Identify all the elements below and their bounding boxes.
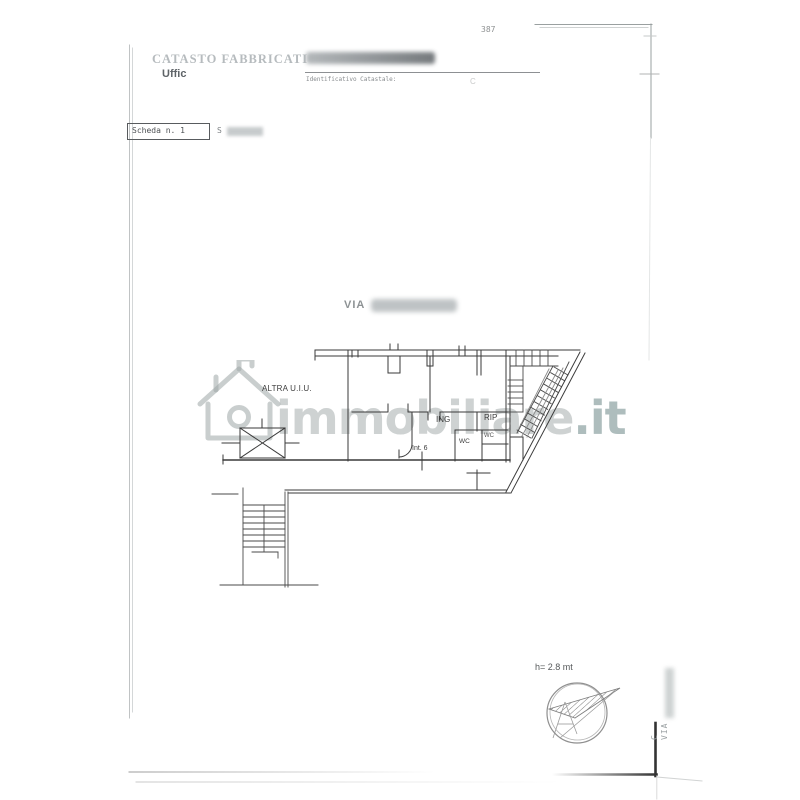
floorplan-drawing bbox=[0, 0, 800, 800]
label-internal-number: Int. 6 bbox=[412, 445, 428, 452]
redacted-street-name bbox=[371, 299, 457, 312]
label-entrance: ING bbox=[436, 415, 450, 424]
identifier-faint-char: C bbox=[470, 77, 476, 86]
scheda-label: Scheda n. 1 bbox=[132, 126, 185, 135]
page-number: 387 bbox=[481, 25, 495, 34]
scanned-cadastral-sheet: immobiliare.it bbox=[0, 0, 800, 800]
scale-prefix: S bbox=[217, 126, 222, 135]
staircase-lower bbox=[212, 488, 318, 587]
header-divider bbox=[305, 72, 540, 73]
registry-title: CATASTO FABBRICATI bbox=[152, 52, 308, 67]
label-other-unit: ALTRA U.I.U. bbox=[262, 384, 312, 393]
redacted-side-text bbox=[665, 668, 674, 718]
side-annotation: C VIA bbox=[650, 723, 669, 740]
identifier-label: Identificativo Catastale: bbox=[306, 76, 396, 83]
label-wc-small: WC bbox=[484, 433, 494, 439]
redacted-office-name bbox=[306, 52, 435, 64]
side-annotation-line2: VIA bbox=[660, 723, 669, 740]
side-annotation-line1: C bbox=[650, 723, 659, 740]
surveyor-stamp bbox=[547, 683, 620, 743]
office-label: Uffic bbox=[162, 68, 186, 80]
street-prefix: VIA bbox=[344, 299, 365, 311]
staircase-main bbox=[508, 350, 569, 438]
redacted-scale-value bbox=[227, 127, 263, 136]
label-ceiling-height: h= 2.8 mt bbox=[535, 662, 573, 672]
label-wc: WC bbox=[459, 438, 470, 445]
label-storage: RIP bbox=[484, 413, 497, 422]
